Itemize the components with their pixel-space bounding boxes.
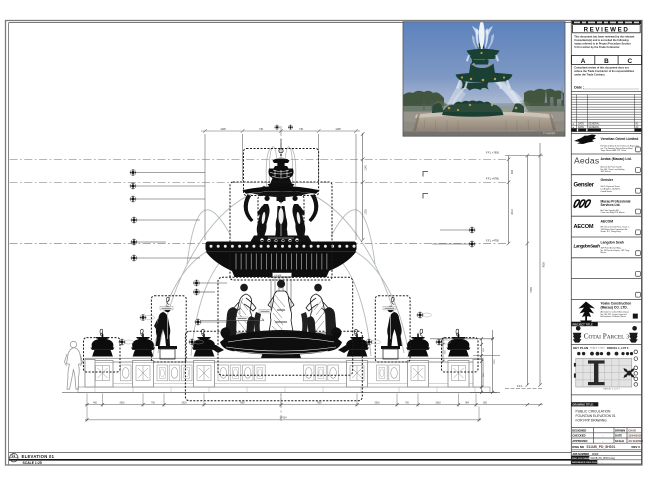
svg-text:Date :: Date : [574, 86, 584, 90]
svg-text:16/F, Macau: 16/F, Macau [601, 171, 611, 173]
svg-text:DATE: DATE [615, 434, 622, 438]
svg-text:This document has been reviewe: This document has been reviewed by the r… [574, 35, 634, 39]
svg-text:AECOM: AECOM [574, 224, 594, 230]
svg-text:DESIGNED: DESIGNED [572, 428, 586, 432]
svg-text:SCALE: SCALE [615, 439, 624, 443]
svg-text:PARCEL 2, LOT 1: PARCEL 2, LOT 1 [604, 388, 621, 391]
svg-text:745: 745 [259, 128, 264, 131]
svg-text:PUBLIC CIRCULATION: PUBLIC CIRCULATION [576, 409, 612, 413]
svg-text:GENERAL: GENERAL [589, 123, 601, 126]
svg-text:7680: 7680 [239, 403, 245, 405]
svg-text:840: 840 [511, 169, 514, 174]
svg-text:Shatin, N.T., Hong Kong: Shatin, N.T., Hong Kong [601, 230, 621, 233]
svg-text:Taipa, Macau SAR, P.R. China: Taipa, Macau SAR, P.R. China [601, 149, 628, 152]
svg-text:JOB NUMBER: JOB NUMBER [572, 453, 589, 456]
svg-text:GENERAL: GENERAL [589, 126, 601, 129]
svg-text:DATE: DATE [578, 123, 584, 126]
svg-text:Gensler: Gensler [574, 183, 595, 189]
svg-text:Macau: Macau [601, 252, 607, 254]
svg-text:F.F.L +4750: F.F.L +4750 [486, 240, 500, 243]
svg-text:7680: 7680 [316, 403, 322, 405]
svg-text:Brilhantismo, 21 Andar, Macau: Brilhantismo, 21 Andar, Macau [601, 315, 627, 318]
svg-text:2818: 2818 [181, 403, 187, 405]
svg-text:-: - [602, 440, 603, 443]
svg-text:C: C [627, 58, 632, 65]
svg-text:13/04/2016: 13/04/2016 [628, 434, 642, 438]
svg-text:3/320: 3/320 [592, 453, 599, 456]
svg-text:1760: 1760 [494, 359, 496, 365]
svg-text:SCALE 1:2500: SCALE 1:2500 [590, 347, 605, 350]
svg-text:FOR FRP DRAWING: FOR FRP DRAWING [576, 419, 608, 423]
svg-text:DATE: DATE [578, 126, 584, 129]
svg-text:COTAI PARCEL 3: COTAI PARCEL 3 [584, 333, 630, 341]
svg-text:(Macau) CO. LTD.: (Macau) CO. LTD. [601, 306, 628, 310]
svg-text:AECOM: AECOM [601, 219, 614, 223]
svg-text:01: 01 [12, 454, 16, 458]
svg-text:LangdonSeah: LangdonSeah [574, 244, 601, 249]
svg-text:2818: 2818 [119, 403, 125, 405]
svg-text:A: A [581, 58, 586, 65]
svg-text:600: 600 [483, 403, 488, 405]
svg-text:1495: 1495 [220, 128, 226, 131]
svg-text:PARCEL 1, LOT 3: PARCEL 1, LOT 3 [607, 346, 629, 350]
svg-text:760: 760 [151, 403, 156, 405]
svg-text:KEY PLAN: KEY PLAN [573, 346, 588, 350]
svg-text:760: 760 [405, 403, 410, 405]
svg-text:Consultants(s) and is accorded: Consultants(s) and is accorded the follo… [574, 38, 629, 42]
svg-text:1495: 1495 [335, 128, 341, 131]
svg-text:5.4 for action by the Trade Co: 5.4 for action by the Trade Contractor. [574, 45, 620, 49]
svg-text:AS SHOWN: AS SHOWN [628, 439, 643, 443]
svg-text:Consultant review of this docu: Consultant review of this document does … [574, 66, 629, 70]
svg-text:984: 984 [465, 403, 470, 405]
svg-text:status referred to in Project: status referred to in Project Procedure … [574, 41, 631, 45]
svg-text:FOUNTAIN ELEVATION 01: FOUNTAIN ELEVATION 01 [576, 414, 616, 418]
svg-text:511UB_PD_8H301: 511UB_PD_8H301 [587, 445, 616, 449]
svg-text:4750: 4750 [530, 287, 533, 293]
svg-text:7600: 7600 [543, 262, 546, 268]
svg-text:DRAWN: DRAWN [615, 428, 625, 432]
svg-text:F.F.L.: F.F.L. [517, 385, 523, 388]
svg-text:▲: ▲ [572, 126, 574, 129]
svg-text:Aedas: Aedas [574, 156, 599, 166]
svg-text:F.F.L +7600: F.F.L +7600 [486, 152, 500, 155]
svg-text:17424: 17424 [279, 416, 287, 420]
svg-text:C-1508: C-1508 [274, 275, 282, 277]
svg-text:450: 450 [445, 349, 447, 353]
svg-text:CHAD: CHAD [628, 428, 636, 432]
svg-text:450: 450 [483, 347, 485, 351]
svg-text:REVIEWED: REVIEWED [584, 26, 630, 33]
svg-text:ELEVATION 01: ELEVATION 01 [22, 454, 55, 459]
svg-text:Gensler: Gensler [601, 178, 614, 182]
svg-text:1725: 1725 [365, 209, 368, 215]
svg-text:Langdon Seah: Langdon Seah [601, 240, 624, 244]
svg-text:2818: 2818 [374, 403, 380, 405]
svg-text:Venetian Orient Limited: Venetian Orient Limited [601, 137, 639, 141]
svg-text:1140: 1140 [365, 165, 368, 171]
svg-text:Services Ltd.: Services Ltd. [601, 203, 621, 207]
svg-text:United States: United States [601, 190, 612, 193]
svg-text:745: 745 [299, 128, 304, 131]
svg-text:APPROVED: APPROVED [572, 439, 587, 443]
svg-text:F.F.L +6760: F.F.L +6760 [486, 178, 500, 181]
svg-text:B: B [604, 58, 609, 65]
svg-text:▲: ▲ [572, 123, 574, 126]
svg-text:REV 0: REV 0 [632, 445, 641, 449]
svg-text:-: - [602, 435, 603, 438]
svg-text:CHECKED: CHECKED [572, 434, 585, 438]
svg-text:2818: 2818 [435, 403, 441, 405]
svg-text:460: 460 [93, 403, 98, 405]
svg-text:SCALE 1:25: SCALE 1:25 [23, 461, 42, 465]
svg-text:REFERENCE DWG FILE NAME: REFERENCE DWG FILE NAME [572, 461, 604, 464]
svg-text:PROJECT TITLE: PROJECT TITLE [573, 322, 593, 326]
svg-text:DRAWING TITLE:: DRAWING TITLE: [573, 403, 594, 407]
svg-text:2010: 2010 [511, 209, 514, 215]
svg-text:China Law Bldg 21/F, Macau: China Law Bldg 21/F, Macau [601, 212, 625, 214]
svg-text:DWG FILE NAME: DWG FILE NAME [572, 457, 590, 460]
svg-text:Aedas (Macau) Ltd.: Aedas (Macau) Ltd. [601, 157, 632, 161]
svg-text:© copyright: © copyright [543, 132, 555, 135]
svg-text:relieve the Trade Contractor o: relieve the Trade Contractor of its resp… [574, 69, 635, 73]
svg-text:DWG NO: DWG NO [572, 445, 585, 449]
svg-text:under the Trade Contract.: under the Trade Contract. [574, 72, 605, 76]
